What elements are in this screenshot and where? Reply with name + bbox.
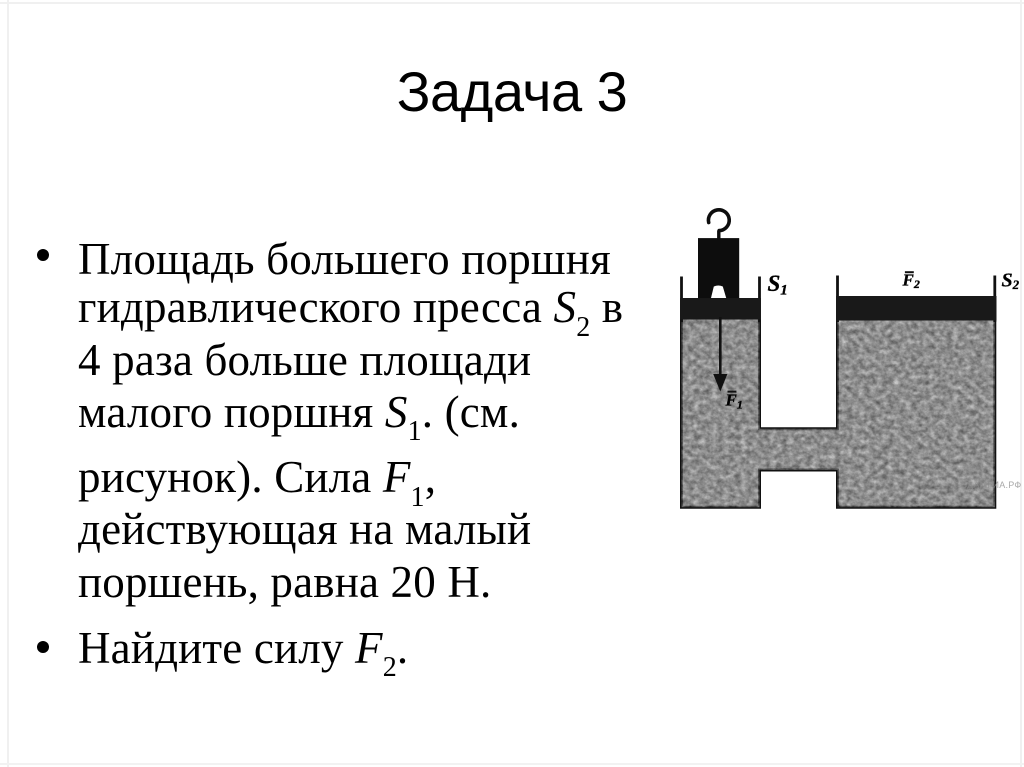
- svg-text:S2: S2: [1002, 269, 1020, 292]
- svg-text:F2: F2: [902, 270, 920, 291]
- svg-text:СДАМГИА.РФ: СДАМГИА.РФ: [961, 480, 1022, 490]
- svg-text:S1: S1: [768, 271, 788, 299]
